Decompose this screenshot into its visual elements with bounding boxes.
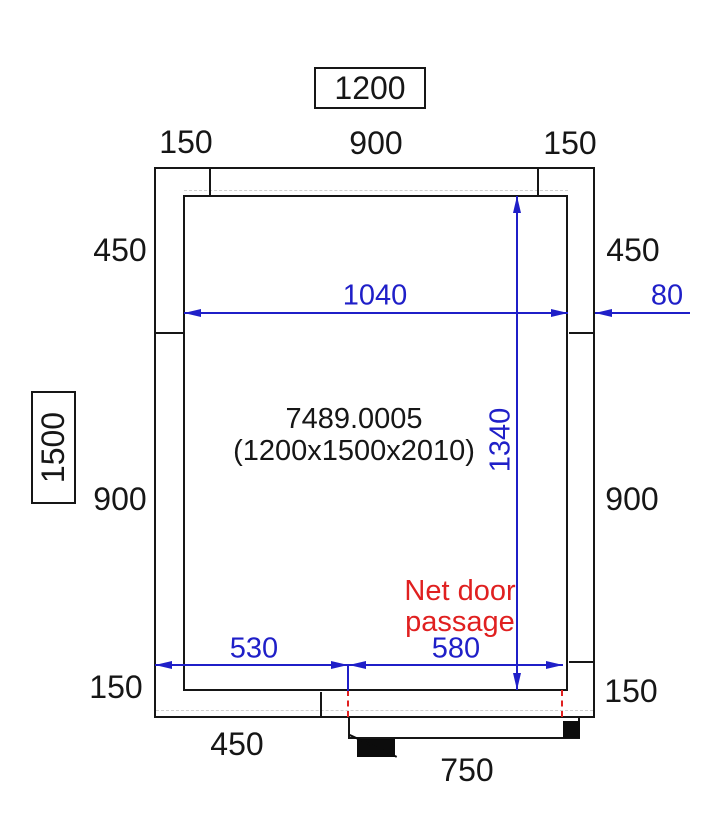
door-passage-marker-left xyxy=(347,690,349,717)
door-leaf-outline xyxy=(348,716,580,739)
dim-label-right-450: 450 xyxy=(606,234,659,266)
panel-hidden-line-top xyxy=(184,190,568,191)
dim-label-bottom-right-150: 150 xyxy=(604,675,657,707)
dim-label-bottom-left-150: 150 xyxy=(89,671,142,703)
net-door-passage-note-line2: passage xyxy=(404,607,515,638)
net-door-passage-note: Net door passage xyxy=(404,576,515,638)
dim-label-top-left-150: 150 xyxy=(159,126,212,158)
dim-label-left-900: 900 xyxy=(93,483,146,515)
door-passage-marker-right xyxy=(561,690,563,717)
tick-right-900 xyxy=(569,661,594,663)
dim-label-top-right-150: 150 xyxy=(543,127,596,159)
tick-top-left-150 xyxy=(209,169,211,195)
tick-top-right-150 xyxy=(537,169,539,195)
arrowhead-1040-right xyxy=(551,309,568,317)
product-size: (1200x1500x2010) xyxy=(233,435,475,467)
overall-depth-box: 1500 xyxy=(31,391,76,504)
dim-label-1040: 1040 xyxy=(343,282,408,311)
dim-label-bottom-450: 450 xyxy=(210,728,263,760)
panel-hidden-line-bottom xyxy=(156,710,593,711)
dim-label-left-450: 450 xyxy=(93,234,146,266)
overall-width-label: 1200 xyxy=(334,70,405,107)
overall-depth-label: 1500 xyxy=(35,412,72,483)
overall-width-box: 1200 xyxy=(314,67,426,109)
arrowhead-1340-top xyxy=(513,196,521,213)
arrowhead-80 xyxy=(595,309,612,317)
product-code: 7489.0005 xyxy=(233,403,475,435)
tick-right-450 xyxy=(569,332,594,334)
floor-plan-drawing: 1200 1500 150 900 150 450 450 900 900 15… xyxy=(0,0,715,825)
arrowhead-580-right xyxy=(546,661,563,669)
dim-label-580: 580 xyxy=(432,635,480,664)
dim-label-top-900: 900 xyxy=(349,127,402,159)
product-note: 7489.0005 (1200x1500x2010) xyxy=(233,403,475,467)
arrowhead-530-left xyxy=(155,661,172,669)
door-hinge xyxy=(563,721,580,738)
tick-bottom-450 xyxy=(320,692,322,717)
arrowhead-580-left xyxy=(349,661,366,669)
arrowhead-530-right xyxy=(331,661,348,669)
dim-label-80: 80 xyxy=(651,282,683,311)
dim-line-1040 xyxy=(184,312,568,314)
dim-label-750: 750 xyxy=(440,754,493,786)
dim-label-530: 530 xyxy=(230,635,278,664)
tick-left-450 xyxy=(156,332,183,334)
dim-label-right-900: 900 xyxy=(605,483,658,515)
arrowhead-1040-left xyxy=(184,309,201,317)
arrowhead-1340-bottom xyxy=(513,673,521,690)
dim-extension-stub xyxy=(347,664,349,691)
dim-label-1340: 1340 xyxy=(487,408,516,473)
net-door-passage-note-line1: Net door xyxy=(404,576,515,607)
